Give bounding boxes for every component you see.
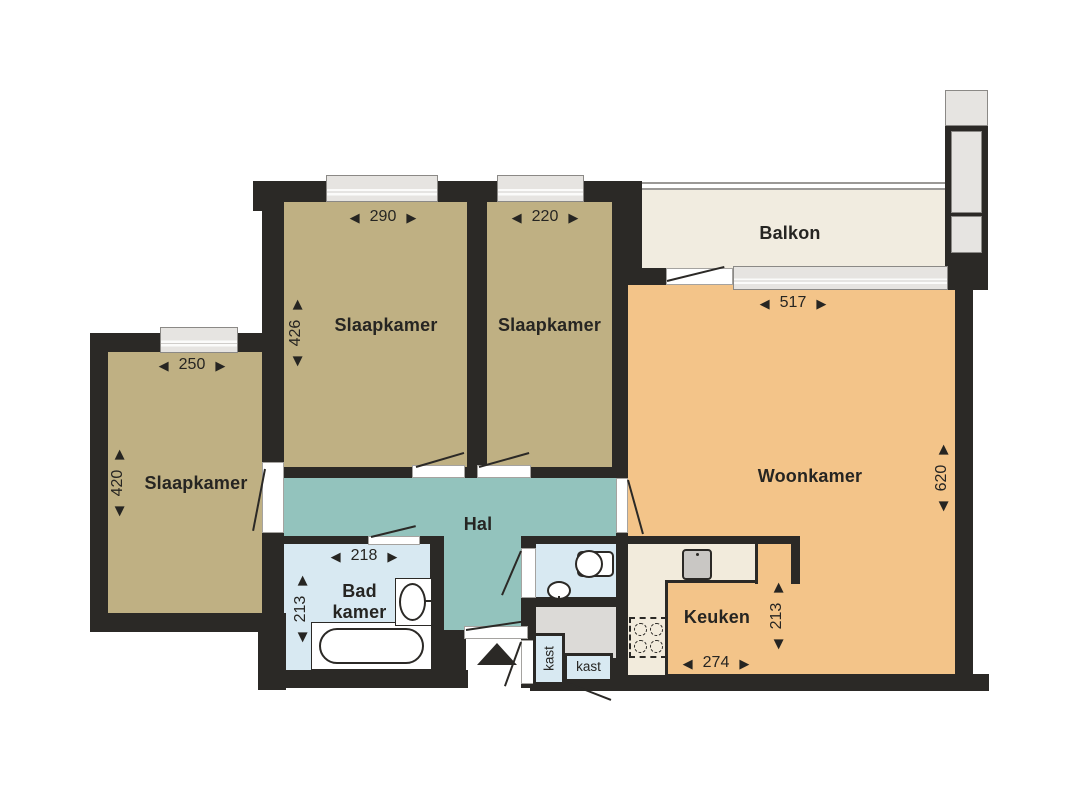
bathroom-sink-tap bbox=[424, 600, 432, 602]
room-label-balcony: Balkon bbox=[690, 223, 890, 244]
kitchen-sink-dot bbox=[696, 553, 699, 556]
shaft-inner-block-1 bbox=[951, 131, 982, 213]
wall-bathroom-right bbox=[430, 536, 444, 632]
shaft-inner-block-2 bbox=[951, 216, 982, 253]
dim-arrow-down-icon: ◀ bbox=[936, 501, 949, 511]
wall-living-right bbox=[955, 285, 973, 691]
door-gap-bedroom-top-left bbox=[412, 465, 465, 478]
toilet-bowl-icon bbox=[575, 550, 603, 578]
room-label-living-room: Woonkamer bbox=[710, 466, 910, 487]
window-bedroom-left-icon bbox=[160, 327, 238, 353]
door-gap-living-room bbox=[616, 478, 628, 533]
closet-hall-label: kast bbox=[542, 639, 557, 679]
dim-bedroom-left-height: ◀ 420 ▶ bbox=[107, 433, 129, 533]
bathroom-label-line1: Bad bbox=[302, 581, 417, 602]
dim-arrow-left-icon: ◀ bbox=[683, 657, 693, 670]
entrance-arrow-icon bbox=[477, 643, 517, 665]
room-label-bathroom: Bad kamer bbox=[302, 581, 417, 623]
dim-arrow-up-icon: ▶ bbox=[771, 583, 784, 593]
dim-arrow-left-icon: ◀ bbox=[350, 211, 360, 224]
hall-floor-column bbox=[444, 536, 521, 632]
dim-value: 290 bbox=[370, 208, 397, 226]
dim-value: 218 bbox=[351, 547, 378, 565]
counter-edge-v1 bbox=[755, 544, 758, 584]
dim-value: 213 bbox=[768, 603, 786, 630]
dim-bedroom-left-width: ◀ 250 ▶ bbox=[132, 354, 252, 376]
door-gap-bathroom bbox=[368, 536, 420, 545]
window-bedroom-top-right-icon bbox=[497, 175, 584, 202]
wall-bathroom-bottom bbox=[258, 670, 468, 688]
wall-bathroom-top-left bbox=[262, 536, 368, 544]
dim-arrow-right-icon: ▶ bbox=[215, 359, 225, 372]
dim-arrow-up-icon: ▶ bbox=[290, 300, 303, 310]
dim-bedroom-top-left-width: ◀ 290 ▶ bbox=[323, 206, 443, 228]
bathtub-basin-icon bbox=[319, 628, 424, 664]
dim-value: 420 bbox=[109, 470, 127, 497]
window-living-room-icon bbox=[733, 266, 948, 290]
door-gap-toilet bbox=[521, 548, 536, 598]
dim-bedroom-top-right-width: ◀ 220 ▶ bbox=[490, 206, 600, 228]
dim-arrow-right-icon: ▶ bbox=[406, 211, 416, 224]
dim-arrow-up-icon: ▶ bbox=[112, 450, 125, 460]
dim-value: 274 bbox=[703, 654, 730, 672]
dim-arrow-up-icon: ▶ bbox=[295, 576, 308, 586]
balcony-railing bbox=[642, 182, 945, 190]
door-gap-balcony bbox=[666, 268, 733, 285]
wall-bedroom-divider bbox=[467, 202, 487, 478]
wall-bedrooms-left bbox=[262, 181, 284, 613]
room-label-kitchen: Keuken bbox=[667, 607, 767, 628]
wall-balcony-bottom-piece bbox=[642, 268, 667, 285]
dim-value: 220 bbox=[532, 208, 559, 226]
dim-arrow-right-icon: ▶ bbox=[387, 550, 397, 563]
closet-entry-label: kast bbox=[564, 659, 613, 674]
dim-arrow-left-icon: ◀ bbox=[331, 550, 341, 563]
dim-bathroom-width: ◀ 218 ▶ bbox=[309, 545, 419, 567]
dim-arrow-down-icon: ◀ bbox=[112, 506, 125, 516]
toilet-sink-tap bbox=[558, 596, 560, 604]
dim-living-room-height: ◀ 620 ▶ bbox=[931, 428, 953, 528]
wall-kitchen-stub bbox=[791, 536, 800, 584]
dim-arrow-right-icon: ▶ bbox=[816, 297, 826, 310]
dim-arrow-right-icon: ▶ bbox=[568, 211, 578, 224]
dim-arrow-right-icon: ▶ bbox=[739, 657, 749, 670]
dim-bedroom-top-left-height: ◀ 426 ▶ bbox=[285, 283, 307, 383]
cooktop-burner-icon bbox=[634, 623, 647, 636]
dim-arrow-left-icon: ◀ bbox=[760, 297, 770, 310]
wall-below-toilet bbox=[533, 597, 616, 607]
dim-value: 620 bbox=[933, 465, 951, 492]
shaft-top-block bbox=[945, 90, 988, 126]
dim-arrow-down-icon: ◀ bbox=[295, 632, 308, 642]
cooktop-burner-icon bbox=[634, 640, 647, 653]
dim-arrow-left-icon: ◀ bbox=[159, 359, 169, 372]
room-label-hall: Hal bbox=[428, 514, 528, 535]
floorplan-canvas: Slaapkamer Slaapkamer Slaapkamer Woonkam… bbox=[0, 0, 1080, 789]
window-bedroom-top-left-icon bbox=[326, 175, 438, 202]
room-label-bedroom-top-right: Slaapkamer bbox=[487, 315, 612, 336]
dim-living-room-width: ◀ 517 ▶ bbox=[733, 292, 853, 314]
door-gap-bedroom-top-right bbox=[477, 465, 531, 478]
dim-arrow-up-icon: ▶ bbox=[936, 445, 949, 455]
dim-arrow-left-icon: ◀ bbox=[512, 211, 522, 224]
room-label-bedroom-left: Slaapkamer bbox=[106, 473, 286, 494]
dim-value: 517 bbox=[780, 294, 807, 312]
wall-bedroom-left-bottom bbox=[90, 613, 268, 632]
dim-value: 426 bbox=[287, 320, 305, 347]
wall-kitchen-divider bbox=[616, 536, 628, 691]
dim-kitchen-height: ◀ 213 ▶ bbox=[766, 570, 788, 662]
dim-arrow-down-icon: ◀ bbox=[771, 639, 784, 649]
dim-value: 250 bbox=[179, 356, 206, 374]
cooktop-burner-icon bbox=[650, 623, 663, 636]
bathroom-label-line2: kamer bbox=[302, 602, 417, 623]
dim-bathroom-height: ◀ 213 ▶ bbox=[290, 563, 312, 655]
dim-value: 213 bbox=[292, 596, 310, 623]
dim-arrow-down-icon: ◀ bbox=[290, 356, 303, 366]
wall-balcony-left bbox=[612, 181, 642, 285]
dim-kitchen-width: ◀ 274 ▶ bbox=[661, 652, 771, 674]
room-label-bedroom-top-left: Slaapkamer bbox=[296, 315, 476, 336]
wall-toilet-kitchen-top bbox=[521, 536, 800, 544]
counter-edge-h bbox=[665, 580, 757, 583]
